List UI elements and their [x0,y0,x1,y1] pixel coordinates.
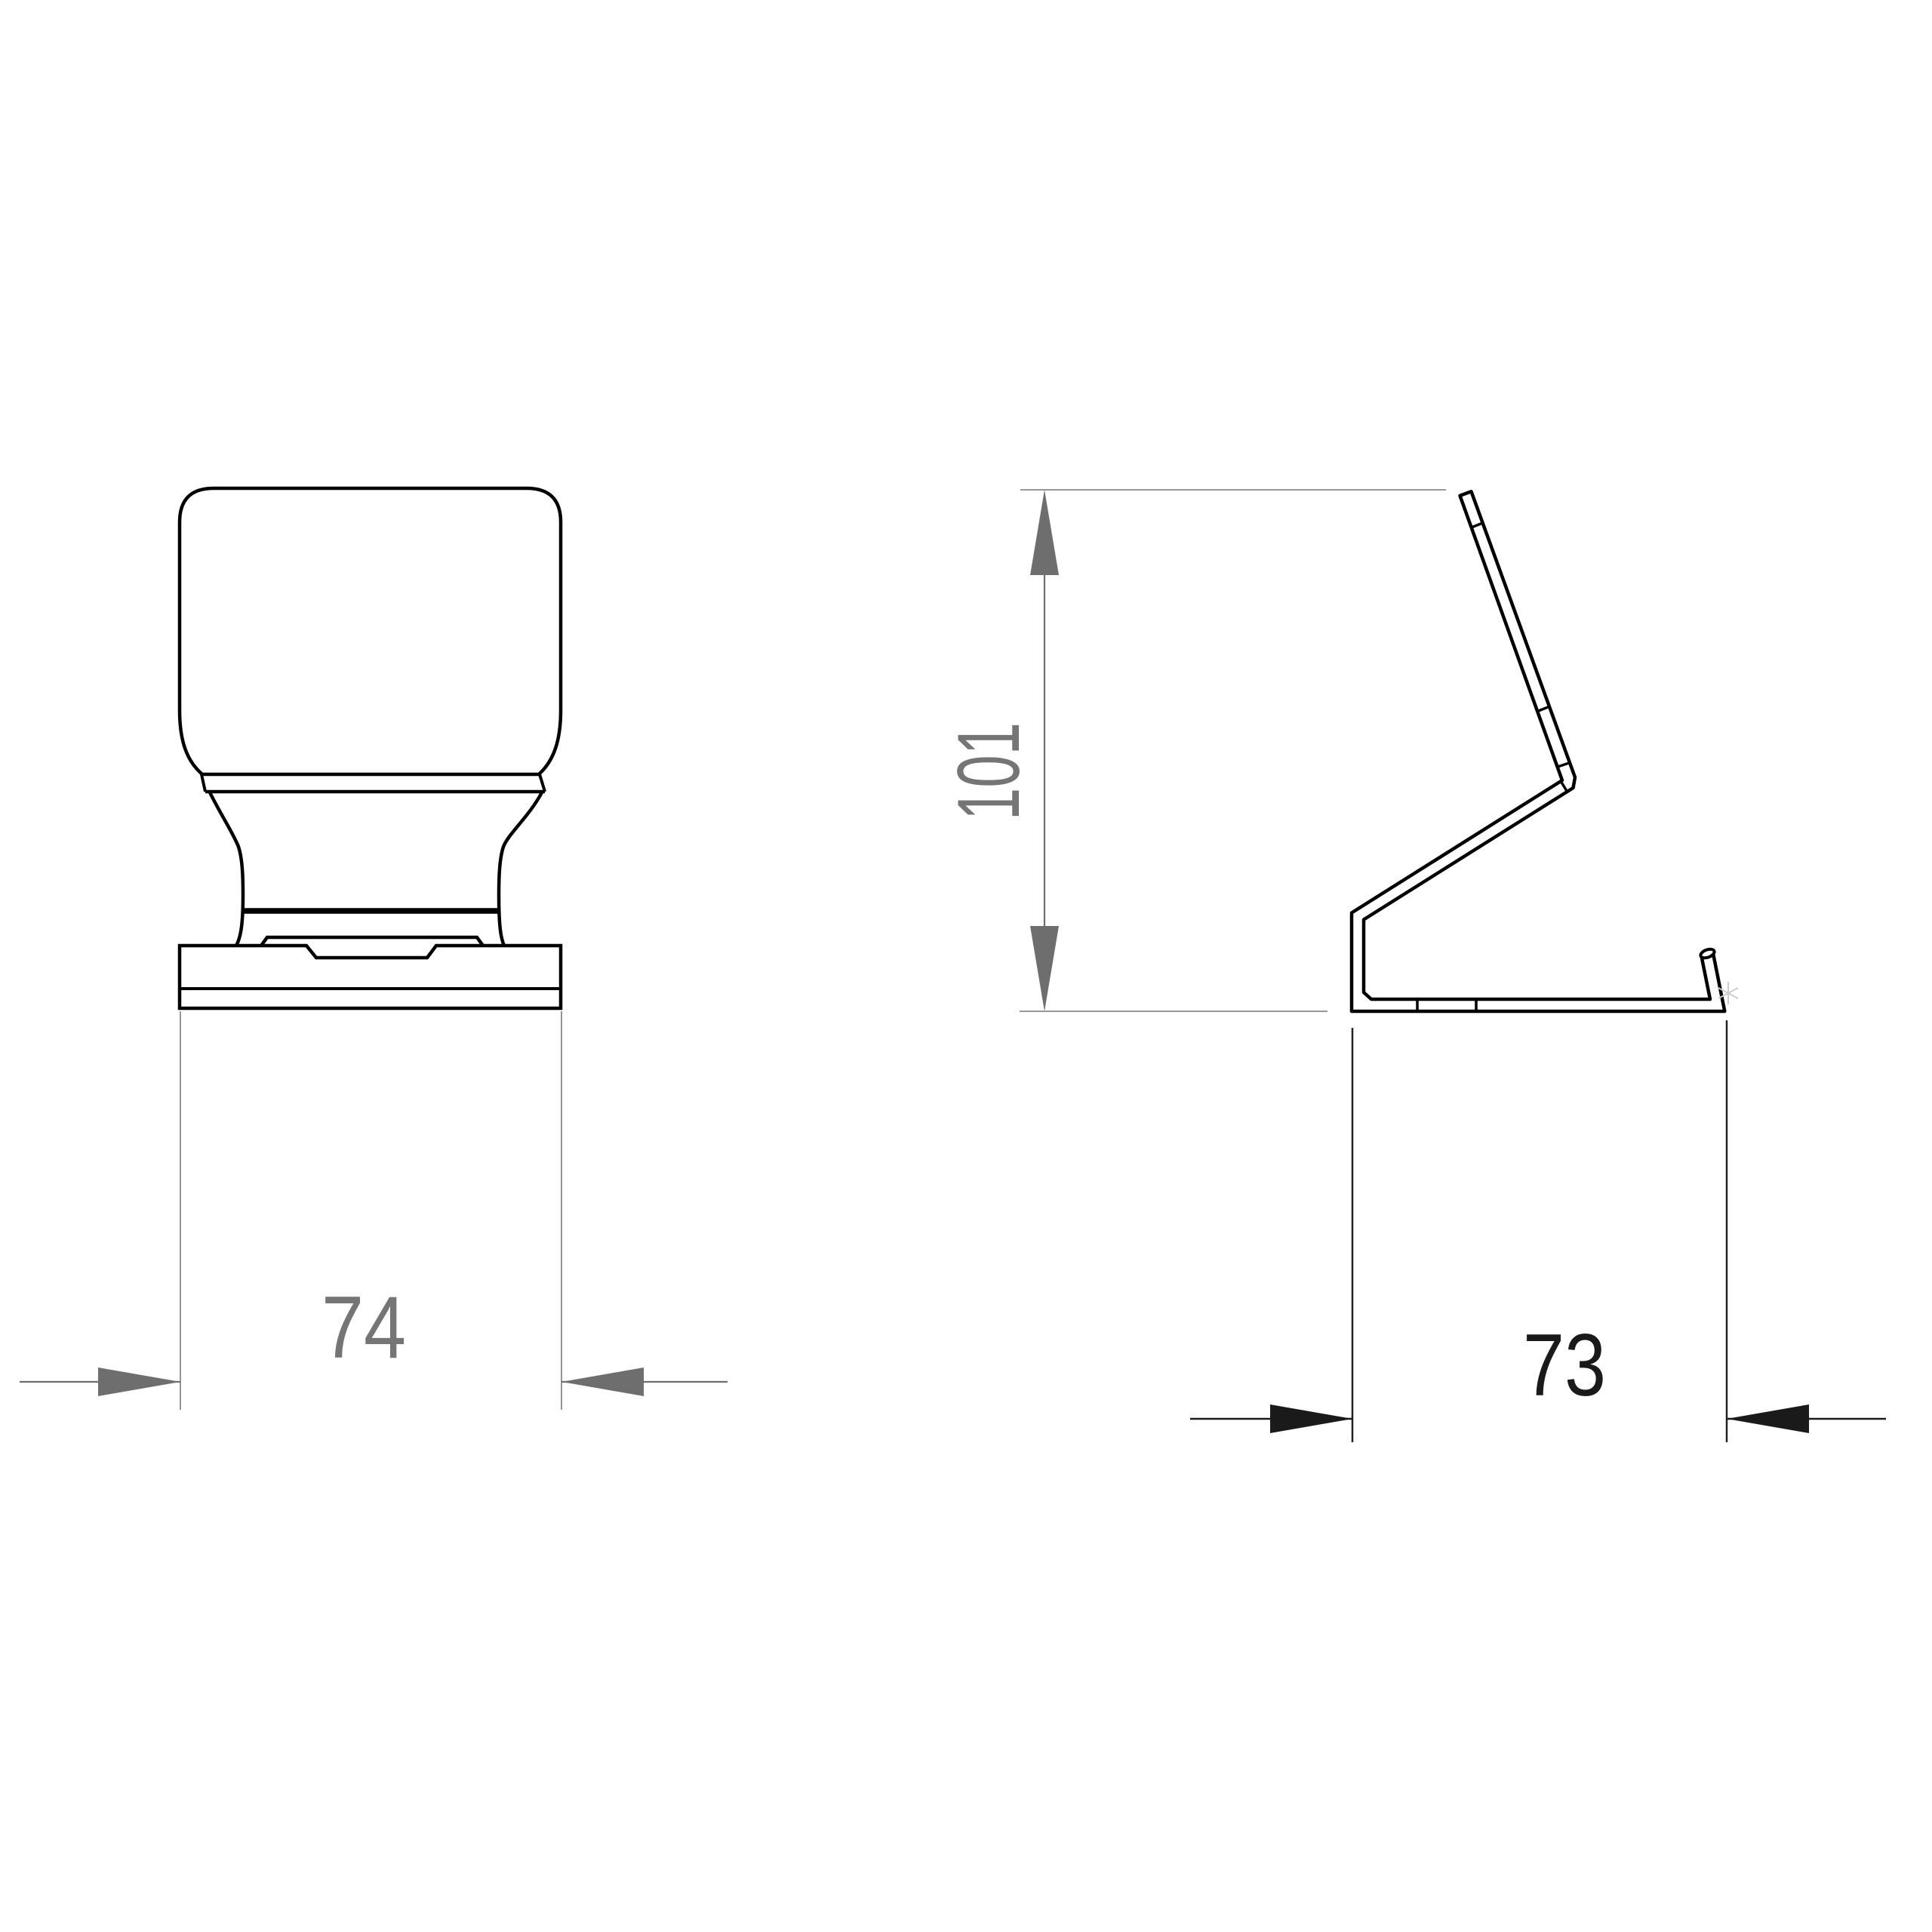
svg-text:74: 74 [321,1278,406,1377]
svg-text:101: 101 [939,722,1038,820]
svg-text:73: 73 [1523,1315,1606,1414]
